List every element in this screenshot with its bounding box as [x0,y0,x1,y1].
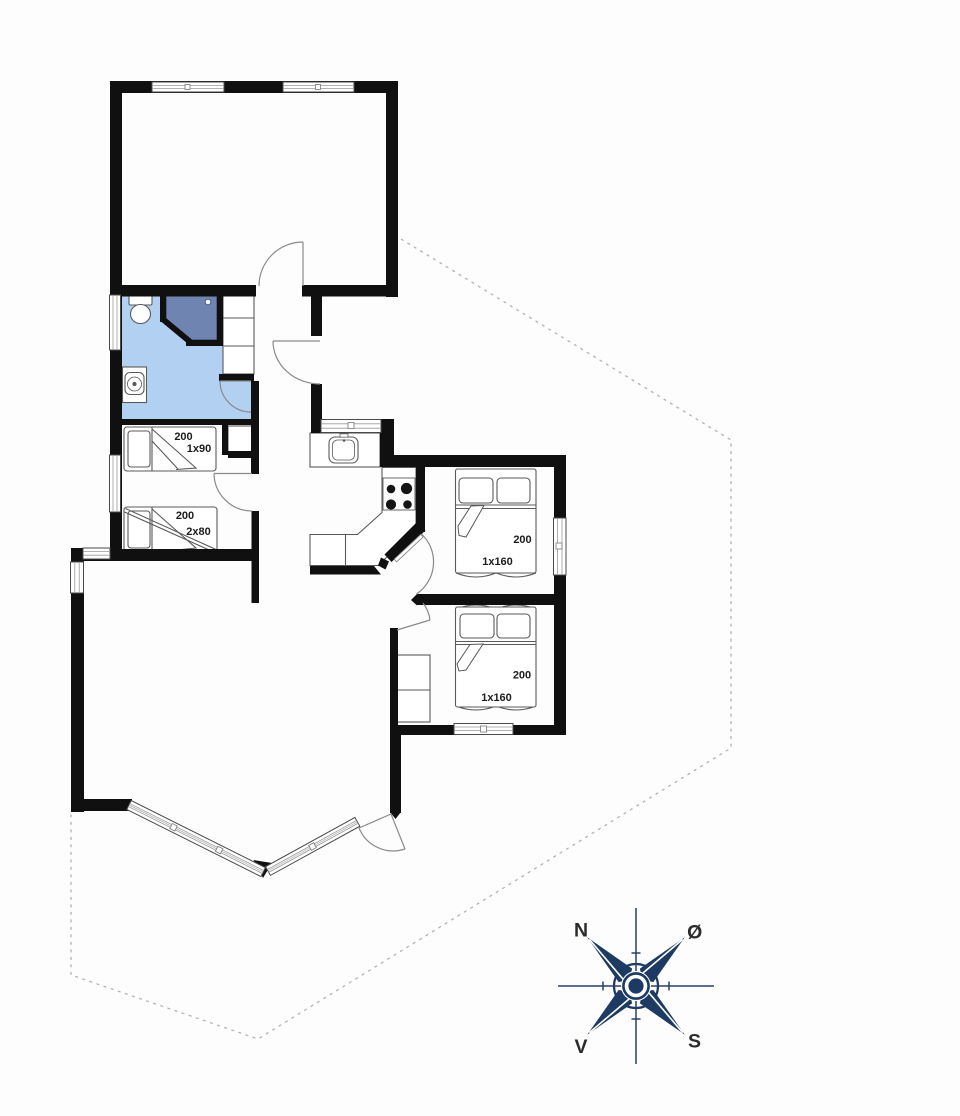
svg-text:200: 200 [513,670,531,682]
svg-text:200: 200 [176,510,194,522]
svg-text:Ø: Ø [687,922,702,944]
svg-text:200: 200 [174,431,192,443]
svg-text:N: N [574,920,588,942]
svg-text:V: V [574,1036,587,1058]
svg-text:1x160: 1x160 [481,692,512,704]
svg-text:1x90: 1x90 [187,443,211,455]
svg-text:200: 200 [513,534,531,546]
svg-text:1x160: 1x160 [482,556,513,568]
svg-text:2x80: 2x80 [186,526,210,538]
svg-text:S: S [688,1031,701,1053]
